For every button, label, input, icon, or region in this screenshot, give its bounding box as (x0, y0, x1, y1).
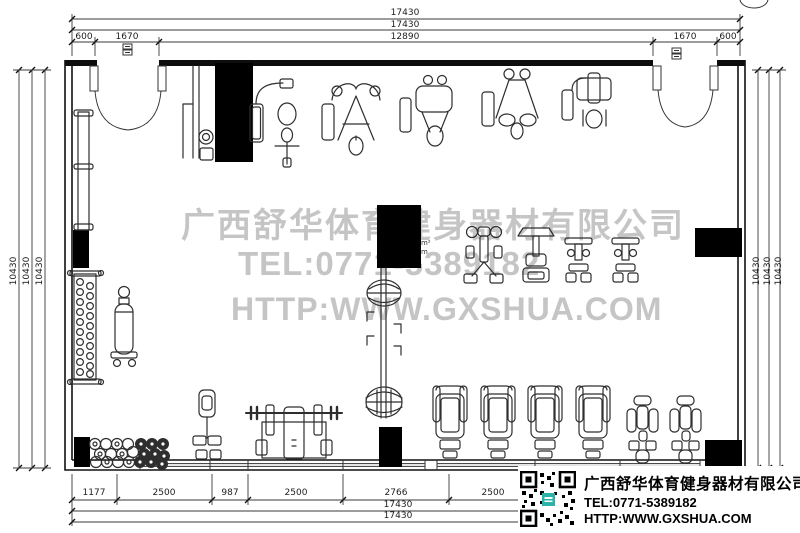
treadmill (576, 386, 610, 458)
strength-machine (565, 238, 592, 282)
info-company-name: 广西舒华体育健身器材有限公司 (584, 472, 800, 494)
dumbbell-rack (68, 271, 104, 385)
strength-machine (322, 84, 380, 155)
floor-plan-drawing (0, 0, 800, 533)
info-tel: TEL:0771-5389182 (584, 495, 800, 510)
door-right (653, 66, 718, 127)
reception-desk (183, 66, 213, 160)
cable-station (366, 268, 402, 418)
strength-machine (562, 73, 611, 128)
qr-code (520, 471, 576, 527)
north-symbol-icon (740, 0, 768, 8)
weight-plates-pile (90, 439, 170, 470)
door-left (90, 66, 166, 130)
treadmill (528, 386, 562, 458)
leg-machine (193, 390, 221, 459)
company-info-block: 广西舒华体育健身器材有限公司 TEL:0771-5389182 HTTP:WWW… (518, 466, 798, 532)
area-label-m: m (421, 248, 431, 257)
exercise-bike (670, 396, 701, 463)
door-tag-icon (123, 44, 681, 59)
floor-plan-canvas: 广西舒华体育健身器材有限公司 TEL:0771-5389182 HTTP:WWW… (0, 0, 800, 533)
bench-press (246, 405, 342, 459)
stretch-rail (74, 110, 93, 230)
strength-machine (400, 76, 452, 147)
exercise-bike (627, 396, 658, 463)
strength-machine (464, 227, 503, 284)
treadmill (481, 386, 515, 458)
water-cooler (111, 287, 137, 367)
area-label: m² m (421, 239, 431, 257)
strength-machine (612, 238, 639, 282)
area-label-sq: m² (421, 239, 431, 248)
strength-machine (482, 69, 538, 139)
treadmill (433, 386, 467, 458)
info-website: HTTP:WWW.GXSHUA.COM (584, 511, 800, 526)
strength-machine (250, 79, 299, 167)
strength-machine (518, 228, 554, 282)
